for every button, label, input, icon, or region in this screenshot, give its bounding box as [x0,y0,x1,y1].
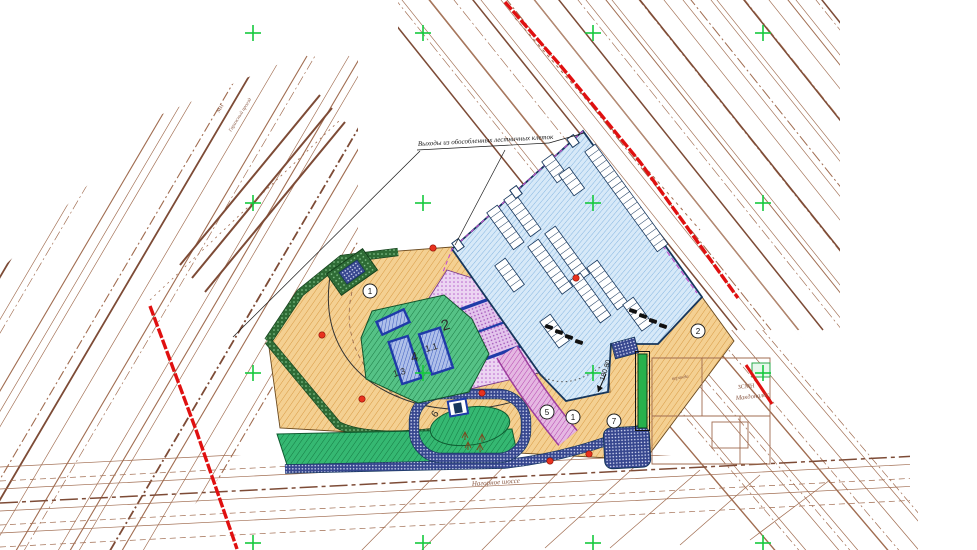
site-plan-drawing: Выходы из обособленных лестничных клеток… [0,0,977,550]
site-zones [268,131,734,469]
site-plan-canvas: Выходы из обособленных лестничных клеток… [0,0,977,550]
keynote-5: 7 [607,414,621,428]
garage-street-label: Гаражный проезд [227,97,253,134]
building-name-label: Макдоналдс [734,391,769,402]
exits-note: Выходы из обособленных лестничных клеток [418,133,554,148]
keynote-3-num: 5 [545,408,550,417]
keynote-4: 1 [566,410,580,424]
garage-abbr-label: МН [216,103,226,114]
keynote-1: 1 [363,284,377,298]
keynote-3: 5 [540,405,554,419]
keynote-2: 2 [691,324,705,338]
street-name-label: Нагорное шоссе [471,477,521,488]
keynote-4-num: 1 [571,413,576,422]
keynote-1-num: 1 [368,287,373,296]
keynote-2-num: 2 [696,327,701,336]
keynote-5-num: 7 [612,417,617,426]
building-abbr-label: ЗСМН [738,383,756,391]
